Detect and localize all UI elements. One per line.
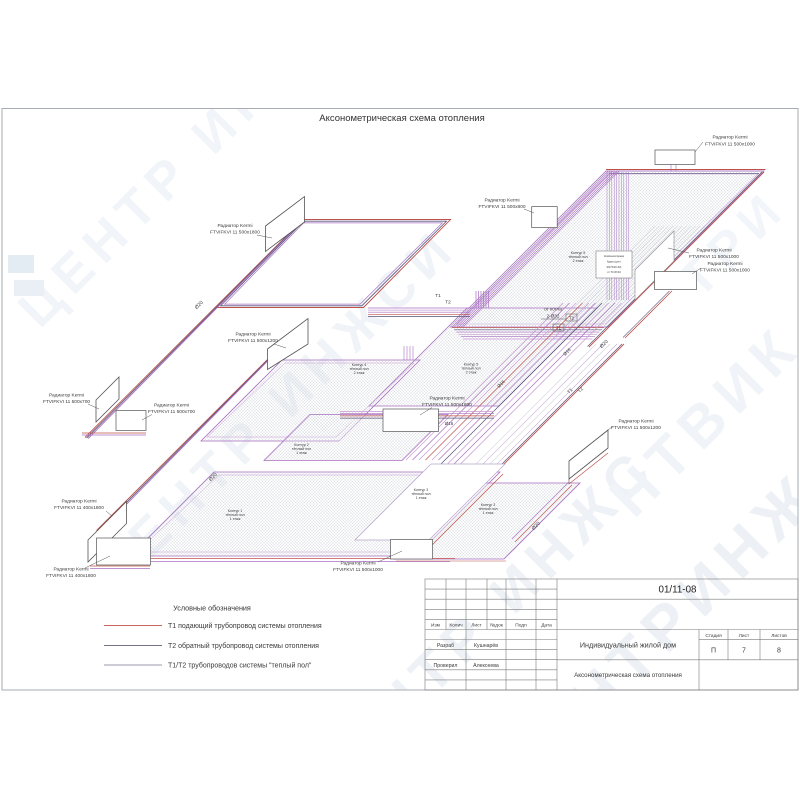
svg-text:90/70/20-30): 90/70/20-30) [607,265,622,269]
svg-text:1 этаж: 1 этаж [230,517,241,521]
svg-text:Подп: Подп [515,623,527,629]
svg-text:Т2: Т2 [569,316,575,321]
svg-text:Радиатор Kermi: Радиатор Kermi [340,561,375,567]
svg-text:8: 8 [777,648,781,655]
svg-text:FTVIFKVI 11 500x1600: FTVIFKVI 11 500x1600 [422,402,472,408]
svg-text:Ø16: Ø16 [445,421,454,426]
svg-text:Дата: Дата [541,623,552,629]
svg-text:Алексеева: Алексеева [473,663,499,669]
svg-text:FTVIFKVI 11 500x1000: FTVIFKVI 11 500x1000 [700,268,750,274]
svg-text:FTVIFKVI 11 400x1800: FTVIFKVI 11 400x1800 [54,505,104,511]
svg-text:Т1: Т1 [435,293,441,299]
svg-text:№док: №док [490,623,504,629]
svg-text:от ТК Ø=32: от ТК Ø=32 [607,270,621,274]
svg-text:Радиатор Kermi: Радиатор Kermi [429,396,464,402]
svg-text:FTVIFKVI 11 500x1800: FTVIFKVI 11 500x1800 [210,230,260,236]
svg-text:Т1: Т1 [556,326,562,331]
svg-text:2-Ø32: 2-Ø32 [547,314,560,319]
svg-text:Аксонометрическая схема отопле: Аксонометрическая схема отопления [319,113,485,124]
svg-text:Радиатор Kermi: Радиатор Kermi [712,135,747,141]
svg-text:FTVIFKVI 11 500x1000: FTVIFKVI 11 500x1000 [689,254,739,260]
svg-text:FTVIFKVI 11 500x1200: FTVIFKVI 11 500x1200 [228,338,278,344]
svg-text:Т2: Т2 [445,300,451,306]
svg-text:FTVIFKVI 11 500x700: FTVIFKVI 11 500x700 [148,409,195,415]
svg-text:Радиатор Kermi: Радиатор Kermi [53,567,88,573]
svg-text:FTVIFKVI 11 400x1800: FTVIFKVI 11 400x1800 [46,573,96,579]
svg-text:Разраб: Разраб [437,643,454,649]
svg-text:Радиатор Kermi: Радиатор Kermi [707,261,742,267]
svg-text:1 этаж: 1 этаж [483,511,494,515]
svg-text:1 этаж: 1 этаж [416,496,427,500]
svg-text:Изм: Изм [431,623,440,629]
svg-text:FTVIFKVI 11 500x1000: FTVIFKVI 11 500x1000 [333,567,383,573]
svg-text:Т1/Т2 трубопроводов системы "т: Т1/Т2 трубопроводов системы "теплый пол" [168,662,312,670]
svg-text:Радиатор Kermi: Радиатор Kermi [49,393,84,399]
svg-text:2 этаж: 2 этаж [354,371,365,375]
svg-text:Аксонометрическая схема отопле: Аксонометрическая схема отопления [574,672,682,679]
svg-text:FTVIFKVI 11 500x1000: FTVIFKVI 11 500x1000 [705,142,755,148]
svg-text:FTVIFKVI 11 500x800: FTVIFKVI 11 500x800 [478,204,525,210]
svg-text:2 этаж: 2 этаж [466,371,477,375]
svg-text:П: П [711,648,716,655]
svg-text:FTVIFKVI 11 500x700: FTVIFKVI 11 500x700 [43,399,90,405]
svg-text:Т2 обратный трубопровод систем: Т2 обратный трубопровод системы отоплени… [168,642,319,650]
svg-text:Радиатор Kermi: Радиатор Kermi [235,332,270,338]
svg-text:01/11-08: 01/11-08 [659,585,697,596]
svg-text:Радиатор Kermi: Радиатор Kermi [618,419,653,425]
svg-text:Радиатор Kermi: Радиатор Kermi [61,499,96,505]
svg-text:Кушнарёв: Кушнарёв [474,643,498,649]
svg-text:Радиатор Kermi: Радиатор Kermi [217,223,252,229]
svg-text:Листов: Листов [771,633,787,639]
svg-text:Колич: Колич [449,623,463,629]
svg-text:1 этаж: 1 этаж [296,451,307,455]
svg-text:будка (для t: будка (для t [607,259,622,263]
svg-text:Условные обозначения: Условные обозначения [173,604,251,613]
svg-text:от котла: от котла [544,307,562,312]
svg-text:Стадия: Стадия [705,633,722,639]
svg-text:2 этаж: 2 этаж [573,259,584,263]
svg-text:Лист: Лист [739,633,750,639]
svg-text:Т1 подающий трубопровод систем: Т1 подающий трубопровод системы отоплени… [168,622,322,630]
svg-text:Радиатор Kermi: Радиатор Kermi [696,248,731,254]
svg-text:Радиатор Kermi: Радиатор Kermi [154,403,189,409]
svg-text:Проверил: Проверил [434,663,458,669]
svg-text:FTVIFKVI 11 500x1200: FTVIFKVI 11 500x1200 [611,425,661,431]
svg-text:Компенсаторная: Компенсаторная [604,254,625,258]
svg-text:Лист: Лист [471,623,482,629]
svg-text:Радиатор Kermi: Радиатор Kermi [484,198,519,204]
svg-text:Индивидуальный жилой дом: Индивидуальный жилой дом [580,641,676,650]
svg-text:7: 7 [742,648,746,655]
